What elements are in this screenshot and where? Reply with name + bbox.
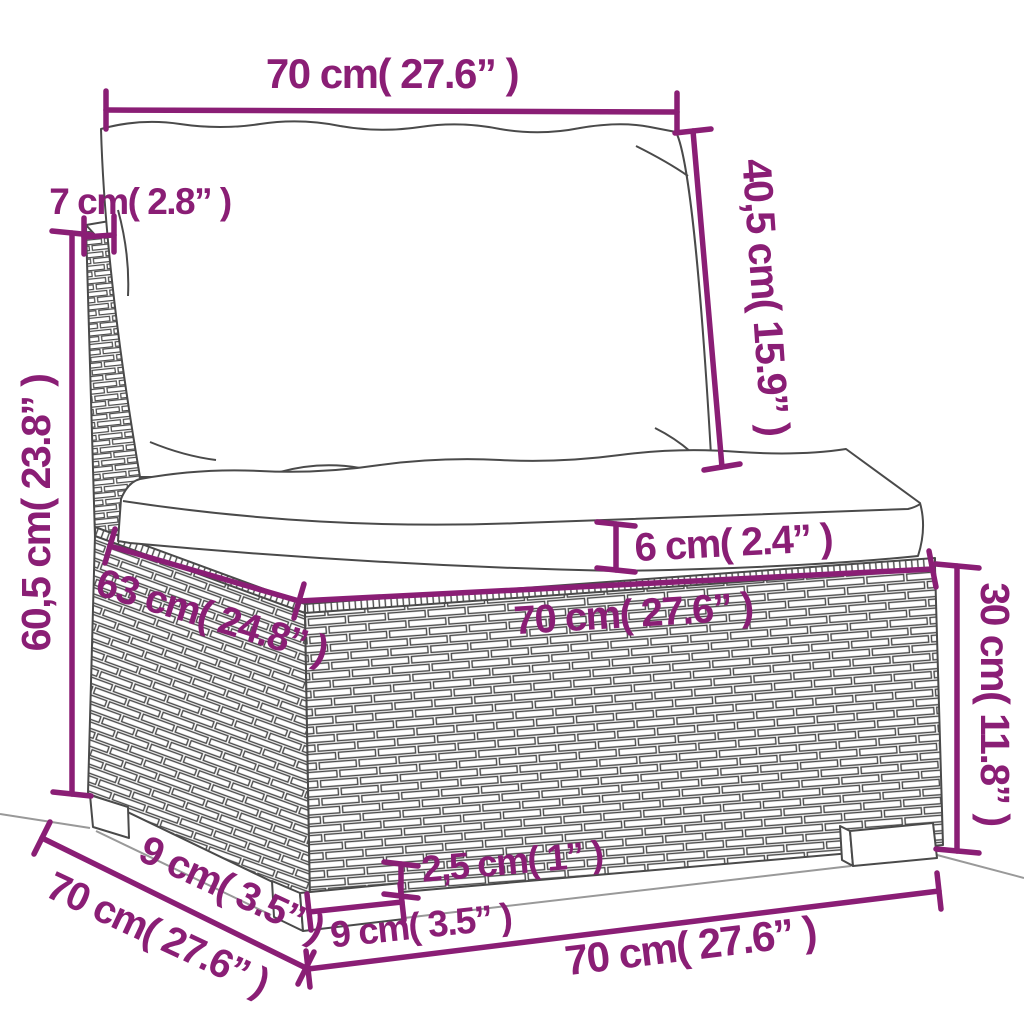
base-height-label: 30 cm( 11.8” ) [972, 582, 1018, 825]
back-cushion [101, 121, 711, 477]
sofa-dimension-drawing: 70 cm( 27.6” ) 7 cm( 2.8” ) 40,5 cm( 15.… [0, 0, 1024, 1024]
overall-height-label: 60,5 cm( 23.8” ) [13, 375, 59, 652]
sofa-line-art [0, 121, 1024, 931]
back-cushion-width-label: 70 cm( 27.6” ) [266, 50, 518, 97]
back-panel-thickness-label: 7 cm( 2.8” ) [49, 181, 231, 222]
front-right-foot [850, 823, 937, 866]
bottom-front-width-label: 70 cm( 27.6” ) [562, 907, 818, 984]
backrest-height-label: 40,5 cm( 15.9” ) [733, 157, 798, 436]
dimension-diagram: 70 cm( 27.6” ) 7 cm( 2.8” ) 40,5 cm( 15.… [0, 0, 1024, 1024]
